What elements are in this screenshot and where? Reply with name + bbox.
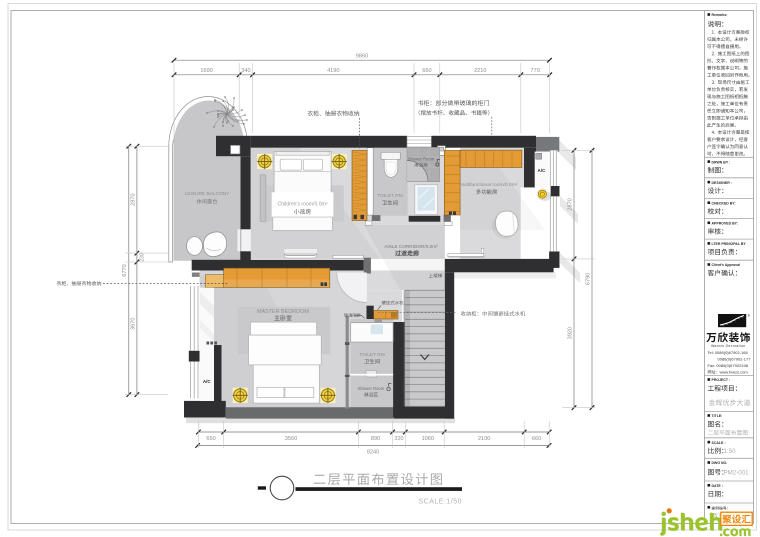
svg-text:2870: 2870	[568, 198, 574, 210]
svg-text:SCALE :: SCALE :	[712, 441, 726, 445]
svg-text:TITLE:: TITLE:	[712, 414, 723, 418]
svg-text:9240: 9240	[367, 449, 379, 455]
svg-text:Fax: 0086(0)67902198: Fax: 0086(0)67902198	[708, 363, 749, 368]
svg-text:3920: 3920	[568, 327, 574, 339]
svg-text:660: 660	[422, 68, 431, 74]
svg-text:Multifunctional room/0.0m²: Multifunctional room/0.0m²	[460, 182, 518, 188]
svg-text:PROJECT :: PROJECT :	[712, 378, 731, 382]
svg-text:6790: 6790	[586, 273, 592, 285]
svg-text:2870: 2870	[130, 193, 136, 205]
svg-text:PM2-001: PM2-001	[724, 470, 750, 477]
svg-text:230: 230	[139, 253, 145, 262]
svg-text:4190: 4190	[327, 68, 339, 74]
svg-text:TOILET RM: TOILET RM	[359, 352, 384, 358]
svg-text:3560: 3560	[285, 436, 297, 442]
svg-text:890: 890	[371, 436, 380, 442]
svg-text:770: 770	[531, 68, 540, 74]
svg-text:Remarks:: Remarks:	[712, 13, 728, 17]
svg-text:Tel: 0086(0)67902-166: Tel: 0086(0)67902-166	[708, 350, 749, 355]
svg-text:DRWN BY :: DRWN BY :	[712, 160, 731, 164]
svg-text:TOILET RM: TOILET RM	[377, 193, 402, 199]
svg-text:SCALE:1/50: SCALE:1/50	[418, 499, 462, 506]
svg-text:®: ®	[748, 314, 751, 318]
svg-text:A/C: A/C	[538, 168, 547, 173]
svg-text:Shower Room: Shower Room	[358, 386, 385, 391]
svg-text:9860: 9860	[356, 54, 368, 60]
svg-text:LTER PRINCIPAL BY: LTER PRINCIPAL BY	[712, 242, 747, 246]
svg-text:6770: 6770	[122, 264, 128, 276]
svg-text:APPROVED BY:: APPROVED BY:	[712, 222, 738, 226]
svg-text:Children's room/0.0m²: Children's room/0.0m²	[278, 201, 328, 207]
svg-text:DESIGNER :: DESIGNER :	[712, 181, 732, 185]
svg-text:2210: 2210	[474, 68, 486, 74]
svg-text:320: 320	[394, 436, 403, 442]
svg-text:2100: 2100	[478, 436, 490, 442]
svg-text:660: 660	[532, 436, 541, 442]
svg-text:DWG NO.: DWG NO.	[712, 461, 728, 465]
svg-text:3670: 3670	[130, 318, 136, 330]
svg-text:1060: 1060	[422, 436, 434, 442]
svg-text:Client's Approval: Client's Approval	[712, 263, 741, 267]
svg-text:LEISURE BALCONY: LEISURE BALCONY	[185, 191, 231, 197]
svg-text:DATE :: DATE :	[712, 484, 723, 488]
svg-text:0086(0)67902-177: 0086(0)67902-177	[718, 356, 752, 361]
svg-text:AISLE CORRIDOR/0.0m²: AISLE CORRIDOR/0.0m²	[384, 244, 438, 249]
svg-text:CHECKED BY:: CHECKED BY:	[712, 201, 736, 205]
svg-text:1:50: 1:50	[724, 448, 737, 455]
svg-text:1690: 1690	[200, 68, 212, 74]
svg-text:A/C: A/C	[203, 379, 212, 384]
svg-text:340: 340	[241, 68, 250, 74]
svg-text:650: 650	[206, 436, 215, 442]
svg-text:Shower Room: Shower Room	[408, 156, 435, 161]
svg-text:Wanxin Decoration: Wanxin Decoration	[711, 344, 745, 348]
svg-text:MASTER BEDROOM: MASTER BEDROOM	[257, 309, 309, 315]
svg-text:www.fxwzs.com: www.fxwzs.com	[720, 369, 749, 374]
